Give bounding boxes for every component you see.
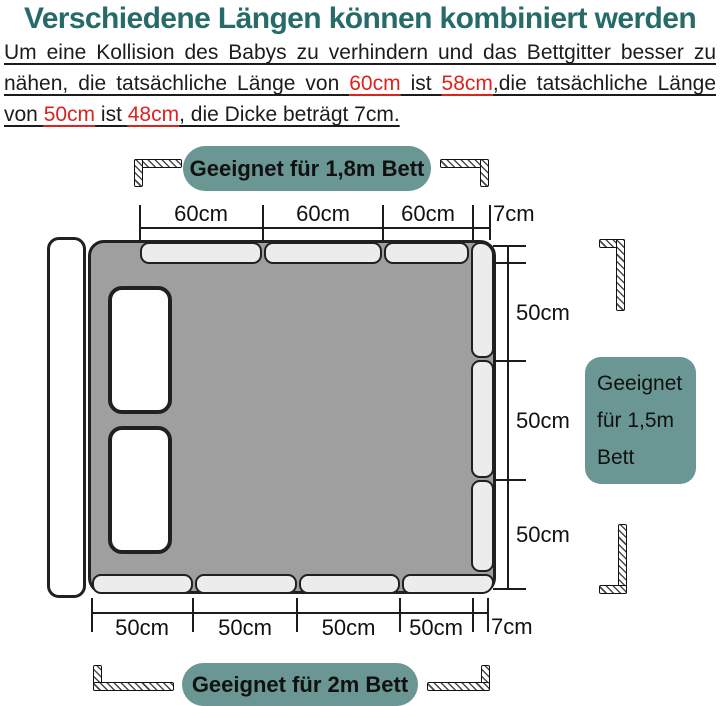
dim-tick [493,479,526,481]
dim-tick [487,598,489,632]
dim-tick [472,205,474,240]
pillow-top [108,286,172,414]
highlight-48cm: 48cm [128,103,179,126]
rail-corner-bracket-top-right-icon [480,159,489,187]
top-dim-label-1: 60cm [151,201,251,227]
bed-rail-segment-top-2 [264,242,382,264]
right-dimension-line [507,246,509,590]
bottom-dimension-line [92,612,489,614]
bed-rail-segment-bottom-4 [402,574,494,594]
badge-2m-bett: Geeignet für 2m Bett [182,663,418,706]
intro-line-3: von 50cm ist 48cm, die Dicke beträgt 7cm… [4,99,716,130]
rail-corner-bracket-right-upper-icon [616,239,625,311]
bed-rail-segment-right-3 [471,480,494,572]
intro-line-2: nähen, die tatsächliche Länge von 60cm i… [4,68,716,99]
top-dim-label-2: 60cm [273,201,373,227]
bed-rail-size-infographic: Verschiedene Längen können kombiniert we… [0,0,720,706]
dim-tick [489,205,491,240]
bottom-dim-label-2: 50cm [194,615,296,641]
bottom-dim-label-1: 50cm [92,615,192,641]
intro-text: , die Dicke beträgt 7cm. [179,103,400,126]
bottom-dim-label-3: 50cm [298,615,399,641]
intro-line-1: Um eine Kollision des Babys zu verhinder… [4,37,716,68]
dim-tick [382,205,384,240]
dim-tick [139,205,141,240]
rail-corner-bracket-top-left-icon [134,159,143,187]
bed-rail-segment-right-2 [471,360,494,478]
bed-rail-segment-bottom-1 [92,574,193,594]
intro-paragraph: Um eine Kollision des Babys zu verhinder… [4,37,716,130]
rail-corner-bracket-bottom-right-icon [427,682,490,691]
highlight-58cm: 58cm [442,72,493,95]
badge-1-5m-bett: Geeignet für 1,5m Bett [585,357,696,484]
intro-text: ist [95,103,128,126]
bottom-dim-label-7cm: 7cm [491,614,539,640]
intro-text: nähen, die tatsächliche Länge von [4,72,349,95]
bed-rail-segment-top-1 [140,242,262,264]
bed-rail-segment-top-3 [384,242,469,264]
badge-label-line: für 1,5m [597,409,674,433]
right-dim-label-3: 50cm [516,522,570,548]
top-dim-label-3: 60cm [388,201,468,227]
page-title: Verschiedene Längen können kombiniert we… [0,2,720,36]
dim-tick [493,360,526,362]
rail-corner-bracket-right-lower-icon [618,524,627,594]
badge-label-line: Geeignet [597,372,682,396]
badge-label-line: Bett [597,446,634,470]
dim-tick [493,588,526,590]
intro-text: ,die tatsächliche Länge [493,72,716,95]
bed-rail-segment-bottom-3 [299,574,400,594]
right-dim-label-2: 50cm [516,408,570,434]
dim-tick [493,262,526,264]
dim-tick [493,245,526,247]
bottom-dim-label-4: 50cm [396,615,476,641]
badge-label: Geeignet für 1,8m Bett [190,156,425,182]
rail-corner-bracket-right-lower-icon [599,585,627,594]
badge-1-8m-bett: Geeignet für 1,8m Bett [183,146,431,191]
highlight-60cm: 60cm [349,72,400,95]
pillow-bottom [108,426,172,554]
intro-text: Um eine Kollision des Babys zu verhinder… [4,41,716,64]
intro-text: von [4,103,44,126]
dim-tick [262,205,264,240]
right-dim-label-1: 50cm [516,300,570,326]
highlight-50cm: 50cm [44,103,95,126]
bed-rail-segment-right-1 [471,242,494,358]
bed-headboard [47,237,86,598]
badge-label: Geeignet für 2m Bett [192,672,408,698]
top-dim-label-7cm: 7cm [493,201,541,227]
top-dimension-line [140,227,490,229]
bed-rail-segment-bottom-2 [195,574,297,594]
rail-corner-bracket-bottom-left-icon [93,682,174,691]
intro-text: ist [401,72,442,95]
